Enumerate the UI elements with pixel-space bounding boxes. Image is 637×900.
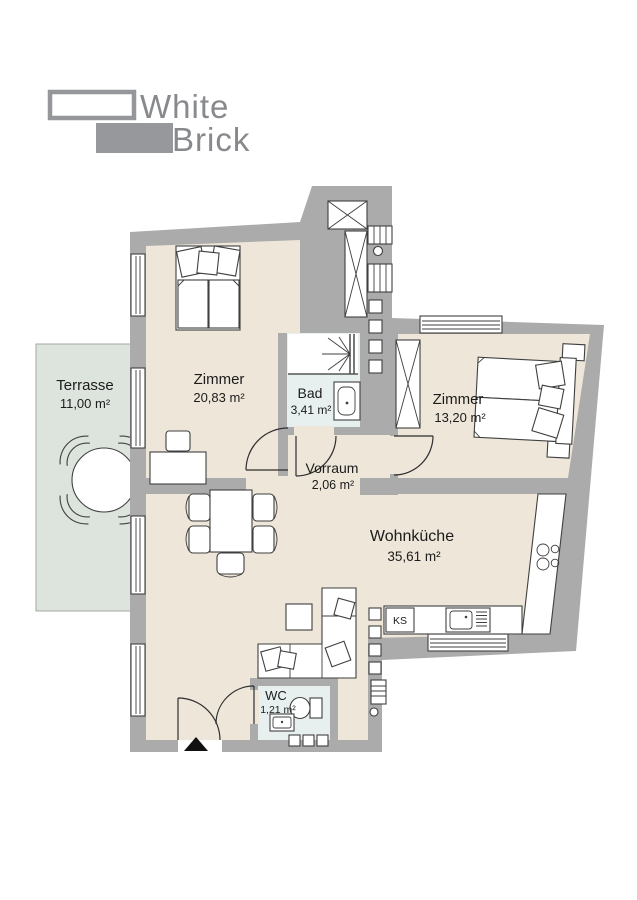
logo-text-brick: Brick [172, 121, 250, 158]
zimmer1-area: 20,83 m² [193, 390, 245, 405]
wall-vent-1 [368, 226, 392, 244]
window-zimmer2-top [420, 316, 502, 333]
window-left-2 [131, 368, 145, 448]
pillow [334, 598, 355, 619]
kitchen-sink-icon [446, 608, 490, 632]
shaft-box-icon [328, 201, 367, 229]
wall-pipe-circle [374, 247, 383, 256]
bad-area: 3,41 m² [291, 403, 332, 417]
wc-area: 1,21 m² [260, 704, 296, 716]
wohnkueche-area: 35,61 m² [387, 549, 441, 564]
desk [150, 452, 206, 484]
coffee-table [286, 604, 312, 630]
pillow [538, 385, 563, 409]
floor-plan-page: White Brick Terrasse 11,00 m² [0, 0, 637, 900]
window-left-3 [131, 516, 145, 594]
mattress [209, 280, 239, 328]
wall-box-wc-1 [289, 735, 300, 746]
vorraum-label: Vorraum [306, 460, 359, 476]
opening-zimmer2 [388, 436, 399, 474]
pillow [536, 361, 565, 389]
wc-label: WC [265, 688, 287, 703]
wall-box-wc-2 [303, 735, 314, 746]
zimmer2-area: 13,20 m² [434, 410, 486, 425]
wohnkueche-label: Wohnküche [370, 528, 454, 545]
dining-table [210, 490, 252, 552]
pillow [197, 251, 219, 275]
bad-label: Bad [298, 385, 323, 401]
zimmer1-bed [176, 246, 240, 330]
logo-filled-brick [96, 123, 173, 153]
fridge-label: KS [393, 615, 407, 627]
wall-vent-2 [368, 264, 392, 292]
window-left-1 [131, 254, 145, 316]
wall-box-1 [369, 300, 382, 313]
floor-plan-svg: White Brick Terrasse 11,00 m² [0, 0, 637, 900]
logo-outline-brick [50, 92, 134, 118]
window-left-4 [131, 644, 145, 716]
logo: White Brick [50, 88, 250, 158]
chair [253, 494, 274, 521]
desk-chair [166, 431, 190, 451]
wall-vent-3 [371, 680, 386, 704]
wall-box-3 [369, 340, 382, 353]
window-kitchen-bottom [428, 634, 508, 651]
opening-bad [294, 426, 334, 436]
chair [253, 526, 274, 553]
wall-pipe-circle-2 [370, 708, 378, 716]
chair [189, 494, 210, 521]
pillow [278, 651, 297, 670]
terrace-round-table [72, 448, 136, 512]
wall-box-wc-3 [317, 735, 328, 746]
vorraum-area: 2,06 m² [312, 478, 354, 492]
tall-wardrobe-shaft-icon [345, 231, 367, 317]
zimmer2-wardrobe [396, 340, 420, 428]
terrace-label: Terrasse [56, 377, 114, 394]
terrace-area: 11,00 m² [60, 396, 111, 411]
chair [217, 553, 244, 574]
kitchen-counter-bottom: KS [384, 606, 522, 634]
bad-shower [288, 334, 358, 374]
bad-washbasin [334, 382, 360, 420]
zimmer2-label: Zimmer [433, 391, 484, 408]
wall-box-4 [369, 360, 382, 373]
logo-text-white: White [140, 88, 229, 125]
wall-stub-passage [360, 478, 398, 495]
wall-box-2 [369, 320, 382, 333]
chair [189, 526, 210, 553]
zimmer1-label: Zimmer [194, 371, 245, 388]
mattress [178, 280, 208, 328]
wc-sink-icon [270, 714, 294, 731]
